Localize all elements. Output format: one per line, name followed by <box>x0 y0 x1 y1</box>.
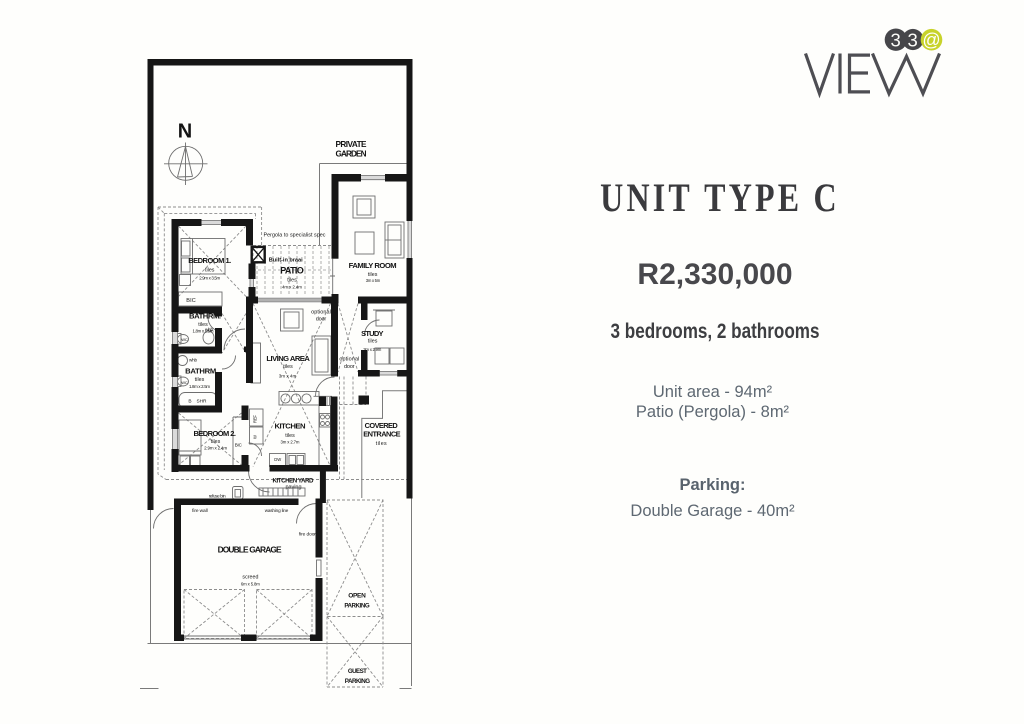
svg-text:3: 3 <box>908 29 918 50</box>
svg-text:3: 3 <box>891 29 901 50</box>
svg-text:@: @ <box>922 30 940 50</box>
